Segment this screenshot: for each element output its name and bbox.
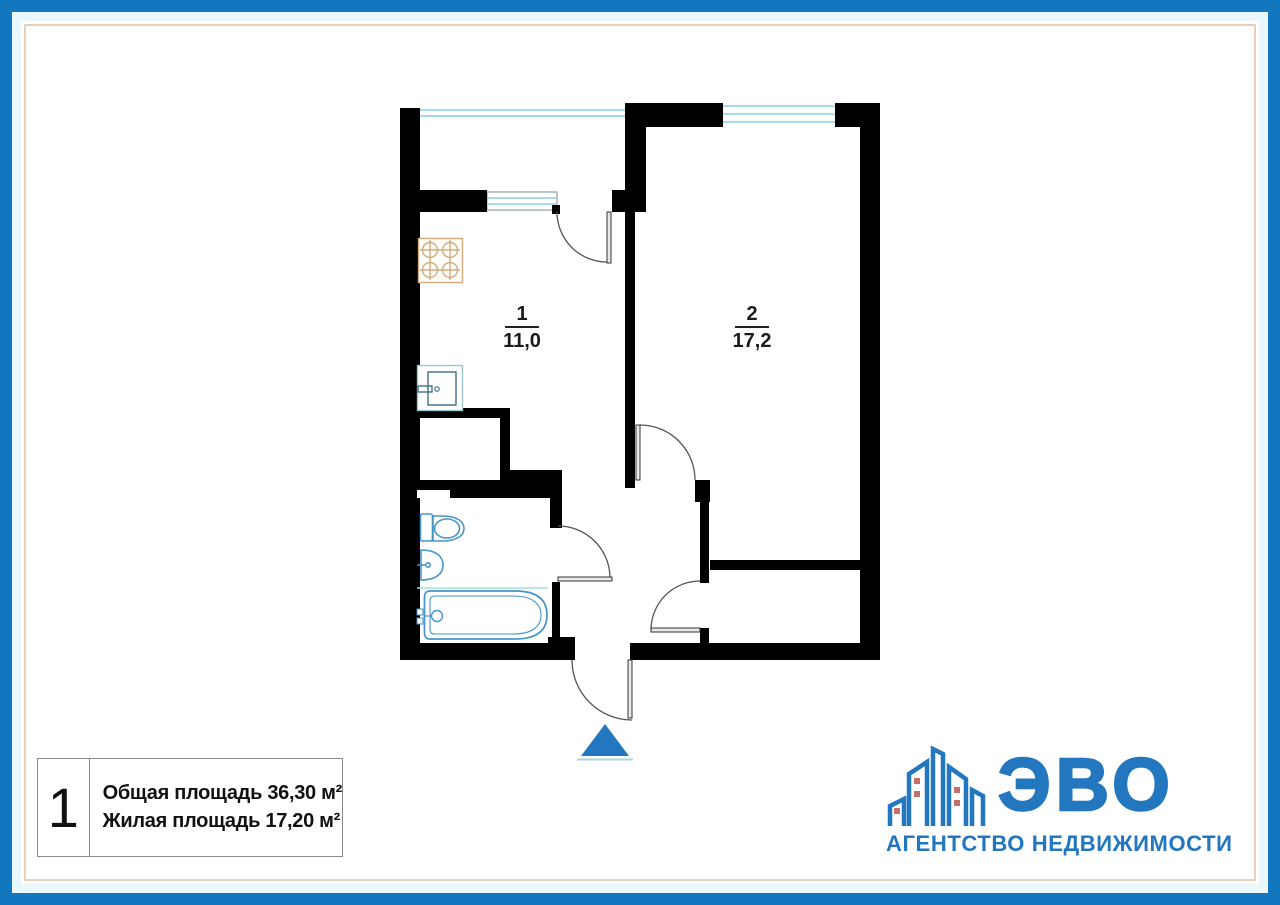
wall (625, 212, 635, 488)
room-label-divider (735, 326, 769, 328)
wall (695, 480, 710, 502)
bathroom-door-arc (558, 526, 610, 578)
bathtub-icon (417, 588, 548, 639)
agency-subtitle: АГЕНТСТВО НЕДВИЖИМОСТИ (886, 831, 1220, 857)
room-2-area: 17,2 (707, 330, 797, 352)
washbasin-icon (417, 550, 443, 580)
bathroom-door-leaf (558, 577, 612, 581)
living-area-line: Жилая площадь 17,20 м² (103, 810, 342, 833)
area-info-box: 1 Общая площадь 36,30 м² Жилая площадь 1… (37, 758, 343, 857)
balcony-door-arc (557, 212, 607, 262)
room-1-number: 1 (477, 303, 567, 325)
wall (400, 643, 572, 660)
closet-door-arc (651, 581, 700, 630)
wall (700, 628, 709, 643)
wall (630, 643, 880, 660)
plan-number: 1 (38, 759, 90, 856)
room-label-divider (505, 326, 539, 328)
wall (860, 103, 880, 660)
entrance-arrow-icon (577, 724, 633, 760)
entrance-door-arc (572, 660, 632, 720)
area-info-lines: Общая площадь 36,30 м² Жилая площадь 17,… (90, 759, 342, 856)
kitchen-window-sill (487, 192, 557, 210)
wall (500, 408, 510, 480)
toilet-icon (421, 514, 465, 541)
kitchen-sink-icon (418, 366, 463, 411)
closet-door-leaf (651, 628, 700, 632)
room-2-number: 2 (707, 303, 797, 325)
stove-icon (419, 239, 463, 283)
room2-door-arc (640, 425, 695, 480)
wall (612, 190, 625, 212)
wall-niche (417, 490, 450, 498)
wall (552, 582, 560, 643)
wall (550, 480, 562, 528)
wall (700, 500, 709, 583)
agency-buildings-icon (886, 740, 990, 828)
wall (710, 560, 860, 570)
room-1-area: 11,0 (477, 330, 567, 352)
room-2-label: 2 17,2 (707, 303, 797, 352)
entrance-door-leaf (628, 660, 632, 718)
wall (548, 637, 575, 660)
total-area-line: Общая площадь 36,30 м² (103, 782, 342, 805)
wall (625, 127, 646, 212)
wall (400, 190, 487, 212)
room-1-label: 1 11,0 (477, 303, 567, 352)
walls (400, 103, 880, 660)
floor-plan-page: 1 11,0 2 17,2 1 Общая площадь 36,30 м² Ж… (0, 0, 1280, 905)
wall (625, 103, 723, 127)
balcony-door-leaf (607, 212, 611, 263)
room2-door-leaf (636, 425, 640, 480)
wall (552, 205, 560, 214)
agency-wordmark: ЭВО (998, 748, 1175, 822)
